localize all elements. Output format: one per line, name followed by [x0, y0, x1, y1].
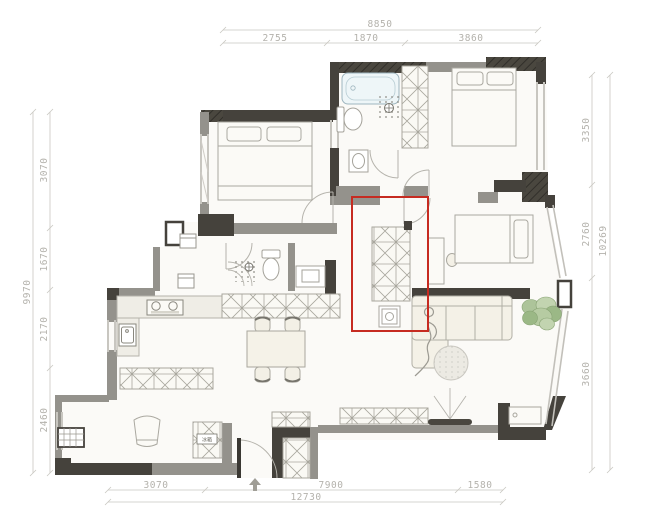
tv-console-cabinet: [340, 408, 428, 424]
entry-door-leaf: [237, 438, 241, 478]
dim-top-seg3: 3860: [459, 33, 484, 44]
shower-2: [228, 258, 256, 286]
kitchen-sink: [119, 324, 136, 346]
dim-right-overall: 10269: [598, 225, 609, 256]
dim-top-overall: 8850: [368, 19, 393, 30]
toilet-1: [337, 107, 362, 132]
floor-plan-drawing: 冰箱: [0, 0, 660, 529]
vanity-sink-1: [349, 150, 368, 172]
dim-bottom-seg3: 1580: [468, 480, 493, 491]
storage-cabinet-row: [120, 368, 213, 389]
dim-left-seg2: 1670: [39, 247, 50, 272]
vanity-2: [296, 266, 325, 287]
dim-bottom-seg2: 7900: [319, 480, 344, 491]
ac-grille-box: [58, 428, 84, 447]
dim-right-seg1: 3350: [581, 118, 592, 143]
dim-left-overall: 9970: [22, 280, 33, 305]
toilet-2: [262, 250, 280, 280]
master-bed: [452, 68, 516, 146]
entry-arrow-icon: [249, 478, 261, 491]
dim-top-seg2: 1870: [354, 33, 379, 44]
dim-bottom-overall: 12730: [290, 492, 321, 503]
entry-closet-top: [272, 412, 310, 427]
dim-left-seg1: 3070: [39, 158, 50, 183]
entry-closet-side: [283, 438, 310, 478]
dim-left-seg4: 2460: [39, 408, 50, 433]
fridge-cabinet: 冰箱: [193, 422, 222, 458]
closet-cabinet: [372, 221, 412, 301]
floor-plan-canvas: 冰箱: [0, 0, 660, 529]
bedroom1-bed: [218, 122, 312, 200]
dim-right-seg2: 2760: [581, 222, 592, 247]
armchair: [134, 416, 160, 447]
dim-top-seg1: 2755: [263, 33, 288, 44]
balcony-column: [558, 281, 571, 307]
kitchen-island-cabinet: [222, 294, 340, 318]
side-counter: [509, 407, 541, 424]
rug: [434, 346, 468, 380]
washer-appliance: [379, 306, 400, 327]
master-wardrobe: [402, 66, 428, 148]
fridge-label: 冰箱: [202, 437, 212, 444]
dim-left-seg3: 2170: [39, 317, 50, 342]
dim-right: [589, 72, 613, 473]
stove: [147, 300, 183, 315]
dim-bottom-seg1: 3070: [144, 480, 169, 491]
shower-area: [375, 96, 402, 120]
dim-right-seg3: 3660: [581, 362, 592, 387]
